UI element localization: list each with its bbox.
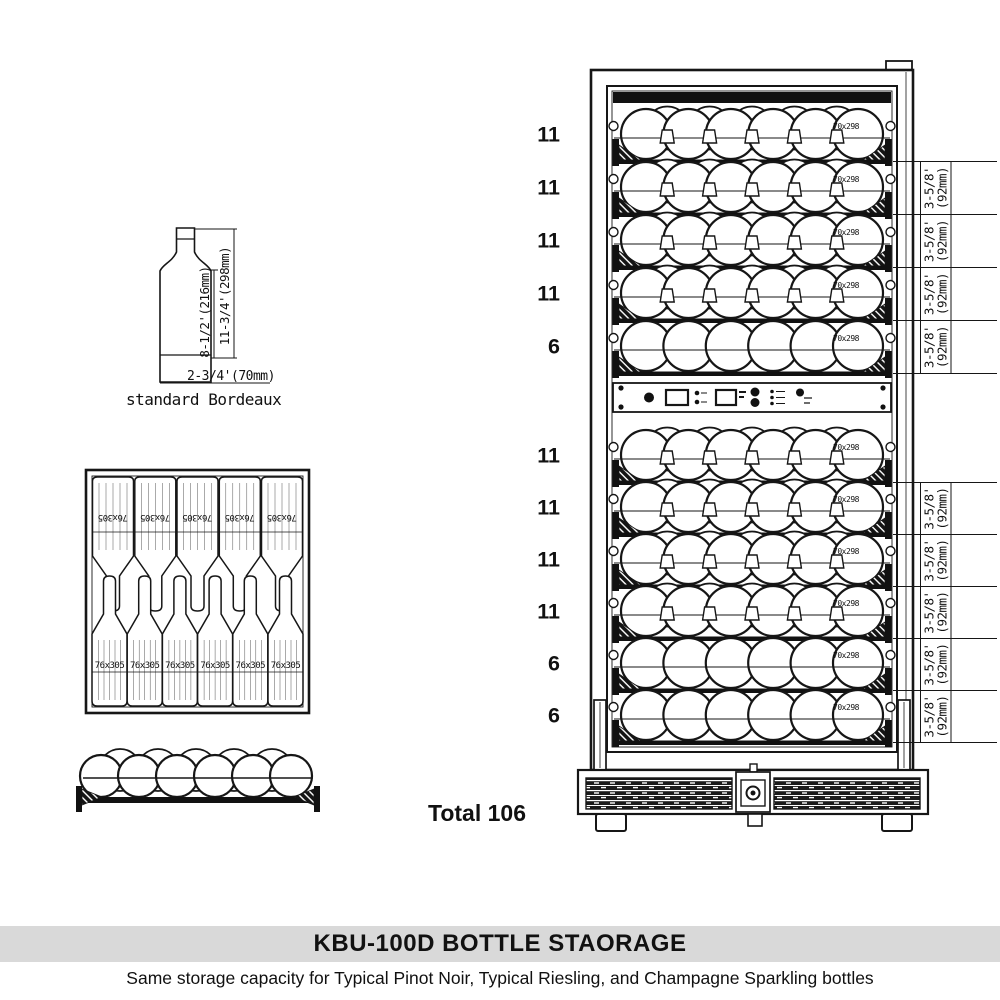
diameter-dimension: 2-3/4'(70mm): [187, 369, 275, 384]
left-wall-peg: [609, 281, 618, 290]
back-bottle-neck: [830, 289, 844, 302]
top-interior-band: [613, 92, 891, 103]
left-wall-peg: [609, 651, 618, 660]
bottle-size-label: 76x305: [271, 661, 301, 671]
panel-bolt: [618, 404, 623, 409]
back-bottle-neck: [745, 236, 759, 249]
front-bottle-end: [270, 755, 312, 797]
icon-shape: [770, 390, 774, 394]
bottle-size-label: 70x298: [833, 703, 860, 712]
right-wall-peg: [886, 651, 895, 660]
shelf-spacing-label-mm: (92mm): [935, 695, 950, 737]
back-bottle-neck: [703, 607, 717, 620]
left-rail-mount: [613, 192, 620, 219]
control-panel: [613, 383, 891, 412]
lock-keyhole: [751, 791, 756, 796]
right-rail-mount: [885, 616, 892, 643]
left-wall-peg: [609, 703, 618, 712]
icon-shape: [751, 398, 760, 407]
rack-top-view: 76x30576x30576x30576x30576x30576x30576x3…: [86, 470, 309, 713]
bottle-size-label: 76x305: [225, 512, 255, 522]
bottle-size-label: 70x298: [833, 228, 860, 237]
overall-height-dimension: 11-3/4'(298mm): [217, 247, 232, 345]
right-wall-peg: [886, 547, 895, 556]
bottle-size-label: 76x305: [95, 661, 125, 671]
left-wall-peg: [609, 228, 618, 237]
wine-cooler-front-view: 70x29870x29870x29870x29870x29870x29870x2…: [578, 61, 928, 831]
back-bottle-neck: [787, 607, 801, 620]
left-wall-peg: [609, 334, 618, 343]
bottle-size-label: 70x298: [833, 443, 860, 452]
back-bottle-neck: [830, 130, 844, 143]
technical-drawing: 8-1/2'(216mm)11-3/4'(298mm)2-3/4'(70mm)7…: [0, 0, 1000, 1000]
back-bottle-neck: [703, 183, 717, 196]
bottle-top-view-neck-up: 76x305: [92, 576, 127, 706]
back-bottle-neck: [787, 451, 801, 464]
icon-shape: [770, 402, 774, 406]
back-bottle-neck: [830, 451, 844, 464]
right-wall-peg: [886, 122, 895, 131]
left-rail-mount: [613, 245, 620, 272]
icon-shape: [751, 388, 760, 397]
right-rail-mount: [885, 245, 892, 272]
right-vent-grille: [774, 778, 920, 809]
back-bottle-neck: [703, 503, 717, 516]
back-bottle-neck: [703, 451, 717, 464]
shelf-spacing-label-mm: (92mm): [935, 643, 950, 685]
back-bottle-neck: [787, 555, 801, 568]
bottle-size-label: 70x298: [833, 651, 860, 660]
right-rail-mount: [885, 668, 892, 695]
shelf-spacing-label-mm: (92mm): [935, 167, 950, 209]
right-rail-mount: [885, 139, 892, 166]
row-bottle-count: 11: [537, 548, 560, 572]
left-wall-peg: [609, 495, 618, 504]
right-end-plate: [314, 786, 320, 812]
right-rail-mount: [885, 512, 892, 539]
right-rail-mount: [885, 351, 892, 378]
bottle-top-view-neck-up: 76x305: [268, 576, 303, 706]
right-wall-peg: [886, 228, 895, 237]
bottle-size-label: 70x298: [833, 495, 860, 504]
back-bottle-neck: [830, 555, 844, 568]
shelf-spacing-label-mm: (92mm): [935, 539, 950, 581]
subtitle: Same storage capacity for Typical Pinot …: [0, 963, 1000, 993]
bottle-size-label: 76x305: [200, 661, 230, 671]
left-end-plate: [76, 786, 82, 812]
body-height-dimension: 8-1/2'(216mm): [197, 266, 212, 357]
icon-shape: [695, 391, 700, 396]
back-bottle-neck: [787, 236, 801, 249]
back-bottle-neck: [660, 555, 674, 568]
top-hinge-tab: [886, 61, 912, 70]
back-bottle-neck: [830, 503, 844, 516]
right-wall-peg: [886, 495, 895, 504]
front-bottle-end: [118, 755, 160, 797]
icon-shape: [644, 393, 654, 403]
right-rail-mount: [885, 192, 892, 219]
back-bottle-neck: [830, 236, 844, 249]
back-bottle-neck: [787, 183, 801, 196]
front-bottle-end: [194, 755, 236, 797]
back-bottle-neck: [830, 607, 844, 620]
right-rail-mount: [885, 564, 892, 591]
right-rail-mount: [885, 720, 892, 747]
right-rail-mount: [885, 460, 892, 487]
bottle-side-view: 8-1/2'(216mm)11-3/4'(298mm)2-3/4'(70mm): [160, 228, 275, 384]
row-bottle-count: 11: [537, 176, 560, 200]
title-band: KBU-100D BOTTLE STAORAGE: [0, 926, 1000, 962]
back-bottle-neck: [703, 130, 717, 143]
bottle-size-label: 70x298: [833, 175, 860, 184]
icon-shape: [796, 389, 804, 397]
left-foot: [596, 814, 626, 831]
left-rail-mount: [613, 564, 620, 591]
left-wall-peg: [609, 122, 618, 131]
back-bottle-neck: [660, 130, 674, 143]
back-bottle-neck: [787, 289, 801, 302]
shelf-spacing-label-mm: (92mm): [935, 487, 950, 529]
left-wall-peg: [609, 443, 618, 452]
bottle-size-label: 70x298: [833, 334, 860, 343]
row-bottle-count: 6: [548, 652, 560, 676]
back-bottle-neck: [745, 183, 759, 196]
control-panel-strip: [613, 383, 891, 412]
panel-bolt: [880, 404, 885, 409]
center-foot: [748, 814, 762, 826]
right-wall-peg: [886, 175, 895, 184]
back-bottle-neck: [660, 236, 674, 249]
bottle-size-label: 70x298: [833, 599, 860, 608]
back-bottle-neck: [745, 607, 759, 620]
shelf-bar: [80, 797, 316, 803]
bottle-size-label: 76x305: [165, 661, 195, 671]
right-wall-peg: [886, 703, 895, 712]
back-bottle-neck: [703, 289, 717, 302]
panel-bolt: [618, 385, 623, 390]
rack-front-view: [76, 749, 320, 812]
left-rail-mount: [613, 668, 620, 695]
back-bottle-neck: [745, 503, 759, 516]
back-bottle-neck: [703, 555, 717, 568]
back-bottle-neck: [703, 236, 717, 249]
right-wall-peg: [886, 281, 895, 290]
bottle-size-label: 76x305: [267, 512, 297, 522]
spec-sheet: 8-1/2'(216mm)11-3/4'(298mm)2-3/4'(70mm)7…: [0, 0, 1000, 1000]
power-button-icon: [644, 393, 654, 403]
shelf-bar: [617, 372, 887, 377]
back-bottle-neck: [745, 451, 759, 464]
back-bottle-neck: [787, 503, 801, 516]
left-wall-peg: [609, 175, 618, 184]
left-rail-mount: [613, 351, 620, 378]
back-bottle-neck: [660, 451, 674, 464]
left-wall-peg: [609, 547, 618, 556]
total-capacity-label: Total 106: [428, 800, 526, 827]
icon-shape: [770, 396, 774, 400]
right-wall-peg: [886, 443, 895, 452]
left-vent-grille: [586, 778, 732, 809]
shelf-bar: [617, 741, 887, 746]
left-wall-peg: [609, 599, 618, 608]
back-bottle-neck: [660, 289, 674, 302]
shelf-spacing-label-mm: (92mm): [935, 220, 950, 262]
icon-shape: [695, 400, 700, 405]
left-rail-mount: [613, 139, 620, 166]
bottle-size-label: 70x298: [833, 547, 860, 556]
bottle-size-label: 70x298: [833, 281, 860, 290]
left-rail-mount: [613, 298, 620, 325]
back-bottle-neck: [660, 503, 674, 516]
row-bottle-count: 11: [537, 282, 560, 306]
lock-tab: [750, 764, 757, 772]
row-bottle-count: 11: [537, 600, 560, 624]
right-rail-mount: [885, 298, 892, 325]
back-bottle-neck: [660, 607, 674, 620]
shelf-bar: [617, 319, 887, 324]
left-rail-mount: [613, 460, 620, 487]
shelf-spacing-label-mm: (92mm): [935, 591, 950, 633]
bottle-size-label: 70x298: [833, 122, 860, 131]
row-bottle-count: 11: [537, 229, 560, 253]
row-bottle-count: 11: [537, 496, 560, 520]
row-bottle-count: 11: [537, 444, 560, 468]
left-rail-mount: [613, 616, 620, 643]
row-bottle-count: 6: [548, 335, 560, 359]
back-bottle-neck: [745, 555, 759, 568]
front-bottle-end: [156, 755, 198, 797]
back-bottle-neck: [660, 183, 674, 196]
shelf-spacing-label-mm: (92mm): [935, 273, 950, 315]
left-rail-mount: [613, 512, 620, 539]
bottle-caption: standard Bordeaux: [126, 390, 296, 409]
back-bottle-neck: [787, 130, 801, 143]
bottle-size-label: 76x305: [183, 512, 213, 522]
back-bottle-neck: [745, 130, 759, 143]
right-wall-peg: [886, 334, 895, 343]
right-foot: [882, 814, 912, 831]
bottle-size-label: 76x305: [140, 512, 170, 522]
right-wall-peg: [886, 599, 895, 608]
front-bottle-end: [232, 755, 274, 797]
row-bottle-count: 11: [537, 123, 560, 147]
bottle-size-label: 76x305: [130, 661, 160, 671]
bottle-size-label: 76x305: [98, 512, 128, 522]
left-rail-mount: [613, 720, 620, 747]
panel-bolt: [880, 385, 885, 390]
back-bottle-neck: [830, 183, 844, 196]
back-bottle-neck: [745, 289, 759, 302]
row-bottle-count: 6: [548, 704, 560, 728]
bottle-size-label: 76x305: [236, 661, 266, 671]
shelf-spacing-label-mm: (92mm): [935, 326, 950, 368]
